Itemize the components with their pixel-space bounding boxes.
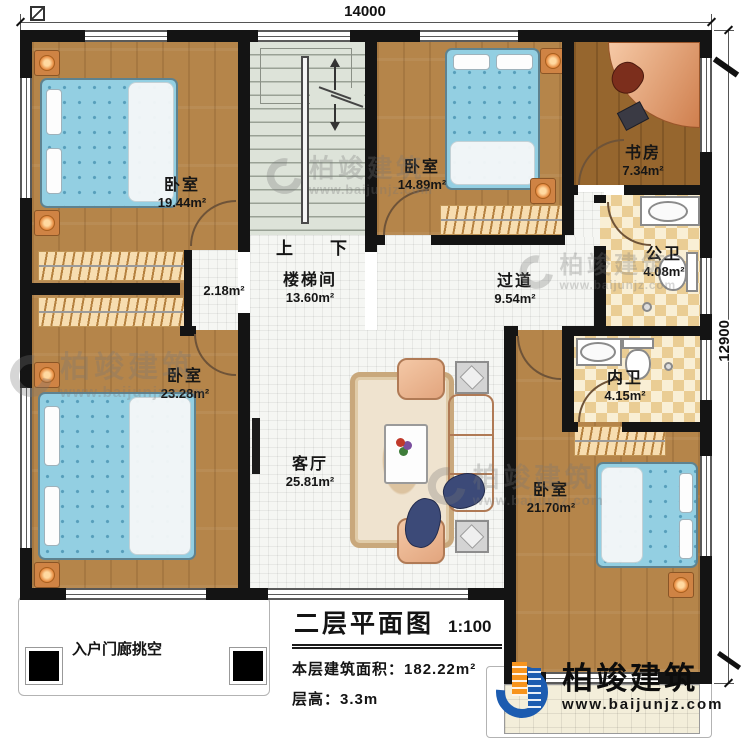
brand-website: www.baijunjz.com xyxy=(562,696,723,713)
pillow xyxy=(46,148,62,194)
stair-arrow-head-down xyxy=(330,122,340,131)
nightstand-lamp xyxy=(530,178,556,204)
wall xyxy=(622,422,712,432)
room-label-study: 书房7.34m² xyxy=(588,144,698,179)
floor-drain xyxy=(642,302,652,312)
wall xyxy=(238,30,250,252)
window xyxy=(700,58,712,152)
brand-logo-icon xyxy=(494,652,556,724)
stair-up-label: 上 xyxy=(276,234,293,259)
room-label-hallway: 过道9.54m² xyxy=(460,272,570,307)
wall xyxy=(562,326,712,336)
stair-railing xyxy=(301,56,309,224)
window xyxy=(700,340,712,400)
table-flowers xyxy=(396,438,405,447)
blanket xyxy=(129,397,191,555)
pillow xyxy=(44,406,60,466)
sink xyxy=(648,201,688,222)
brand-name: 柏竣建筑 xyxy=(562,663,723,696)
wall xyxy=(594,195,606,203)
side-table xyxy=(455,361,489,394)
porch-label: 入户门廊挑空 xyxy=(72,638,222,659)
wall xyxy=(365,30,377,252)
window xyxy=(258,30,350,42)
bed xyxy=(38,392,196,560)
dim-top-line xyxy=(20,22,712,23)
dim-right-witness-top xyxy=(714,30,734,31)
room-label-bedroom-bottom-left: 卧室23.28m² xyxy=(130,367,240,402)
wall xyxy=(377,235,385,245)
room-label-nook: 2.18m² xyxy=(169,283,279,299)
nightstand-lamp xyxy=(34,562,60,588)
dim-right-label: 12900 xyxy=(716,320,732,362)
window xyxy=(66,588,206,600)
floor-height-value: 3.3m xyxy=(340,691,378,708)
wall xyxy=(20,283,180,295)
pillow xyxy=(46,89,62,135)
wall xyxy=(594,246,606,330)
coffee-table xyxy=(384,424,428,484)
plan-scale: 1:100 xyxy=(448,617,491,637)
side-table xyxy=(455,520,489,553)
dim-top-label: 14000 xyxy=(320,3,410,20)
nightstand-lamp xyxy=(34,362,60,388)
nightstand-lamp xyxy=(668,572,694,598)
plan-title: 二层平面图 xyxy=(294,604,434,640)
plan-title-row: 二层平面图 1:100 xyxy=(292,604,502,649)
wall xyxy=(431,235,565,245)
wardrobe-bedroom-top-left xyxy=(38,251,188,281)
wardrobe-bedroom-bottom-left xyxy=(38,297,188,327)
porch-column xyxy=(230,648,266,684)
armchair xyxy=(397,358,445,400)
window xyxy=(268,588,468,600)
stair-arrow-line xyxy=(334,64,336,90)
blanket xyxy=(601,467,643,563)
section-mark xyxy=(713,57,739,78)
pillow xyxy=(679,473,693,513)
pillow xyxy=(496,54,533,70)
room-label-living-room: 客厅25.81m² xyxy=(255,455,365,490)
floor-area-label: 本层建筑面积： xyxy=(292,661,404,678)
nightstand-lamp xyxy=(34,210,60,236)
window xyxy=(700,456,712,556)
wall xyxy=(562,30,574,235)
wall xyxy=(624,185,712,195)
wall xyxy=(238,313,250,330)
window xyxy=(420,30,518,42)
pillow xyxy=(453,54,490,70)
window xyxy=(85,30,167,42)
title-block: 二层平面图 1:100 本层建筑面积：182.22m² 层高：3.3m xyxy=(292,604,502,709)
logo-building-blue-icon xyxy=(528,668,541,708)
wall xyxy=(562,422,578,432)
nightstand-lamp xyxy=(34,50,60,76)
stair-arrow-line xyxy=(334,104,336,124)
wardrobe-bedroom-top-middle xyxy=(440,205,563,235)
stair-arrow-head-up xyxy=(330,58,340,67)
toilet-tank xyxy=(622,338,654,349)
room-label-bedroom-bottom-right: 卧室21.70m² xyxy=(496,481,606,516)
sink xyxy=(580,342,616,362)
pillow xyxy=(44,486,60,546)
pillow xyxy=(679,519,693,559)
stair-down-label: 下 xyxy=(330,234,347,259)
room-label-public-bathroom: 公卫4.08m² xyxy=(609,245,719,280)
room-label-bedroom-top-middle: 卧室14.89m² xyxy=(367,158,477,193)
floor-height-label: 层高： xyxy=(292,691,340,708)
room-label-bedroom-top-left: 卧室19.44m² xyxy=(127,176,237,211)
floor-area-row: 本层建筑面积：182.22m² xyxy=(292,658,502,679)
wall xyxy=(504,326,518,336)
floor-area-value: 182.22m² xyxy=(404,661,476,678)
wall xyxy=(562,185,578,195)
bed xyxy=(596,462,698,568)
floor-plan-canvas: 14000 12900 xyxy=(0,0,750,740)
axis-marker xyxy=(30,6,45,21)
brand-logo: 柏竣建筑 www.baijunjz.com xyxy=(494,652,723,724)
window xyxy=(20,388,32,548)
floor-height-row: 层高：3.3m xyxy=(292,688,502,709)
logo-building-orange-icon xyxy=(512,662,527,696)
window xyxy=(20,78,32,198)
room-label-ensuite: 内卫4.15m² xyxy=(570,369,680,404)
porch-column xyxy=(26,648,62,684)
